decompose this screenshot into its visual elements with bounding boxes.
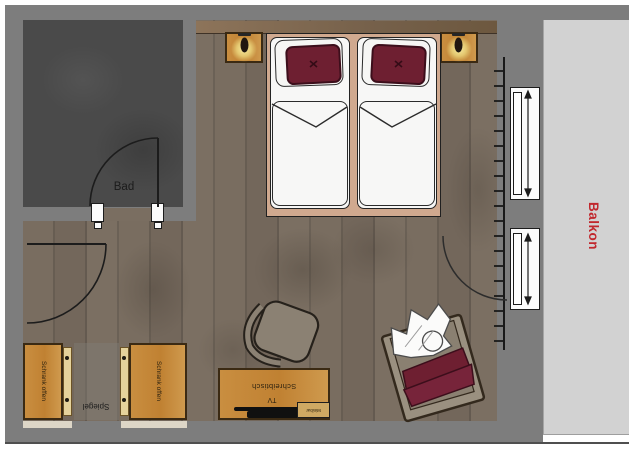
pillow-accent-right bbox=[370, 44, 427, 86]
wardrobe-right-knob-bottom bbox=[122, 398, 126, 402]
pillow-accent-left bbox=[285, 44, 342, 86]
wall-left bbox=[5, 5, 23, 443]
wardrobe-right-plinth bbox=[121, 421, 187, 428]
bathroom-label: Bad bbox=[94, 181, 154, 195]
bathroom-door-post-right bbox=[151, 203, 164, 222]
curtain-rail bbox=[494, 57, 505, 350]
mirror-label: Spiegel bbox=[71, 400, 121, 413]
bathroom-door-foot-right bbox=[154, 222, 162, 229]
wardrobe-right-knob-top bbox=[122, 356, 126, 360]
minibar-label: Minibar bbox=[297, 403, 330, 416]
tv-device bbox=[234, 407, 306, 411]
bathroom-door-post-left bbox=[91, 203, 104, 222]
window-sash-lower bbox=[513, 233, 522, 305]
wardrobe-left-plinth bbox=[23, 421, 72, 428]
wardrobe-left-label: Schrank offen bbox=[38, 346, 48, 416]
bathroom-door-foot-left bbox=[94, 222, 102, 229]
desk-label: Schreibtisch bbox=[218, 381, 330, 392]
window-sash-upper bbox=[513, 92, 522, 195]
duvet-left bbox=[272, 101, 348, 206]
nightstand-left bbox=[225, 32, 263, 63]
bathroom-door-opening bbox=[104, 208, 152, 221]
nightstand-right bbox=[440, 32, 478, 63]
plan-base-line bbox=[5, 442, 629, 444]
bathroom-floor bbox=[23, 20, 183, 207]
wardrobe-left-knob-top bbox=[65, 356, 69, 360]
bathroom-wall-right bbox=[183, 5, 196, 207]
wardrobe-left-knob-bottom bbox=[65, 398, 69, 402]
tv-label: TV bbox=[250, 395, 294, 405]
duvet-right bbox=[359, 101, 435, 206]
floor-plan: Bad Balkon Schrank offen Schrank offen S… bbox=[0, 0, 636, 449]
wall-bottom bbox=[5, 421, 543, 443]
wardrobe-right-label: Schrank offen bbox=[153, 346, 163, 416]
balcony-label: Balkon bbox=[585, 181, 601, 271]
